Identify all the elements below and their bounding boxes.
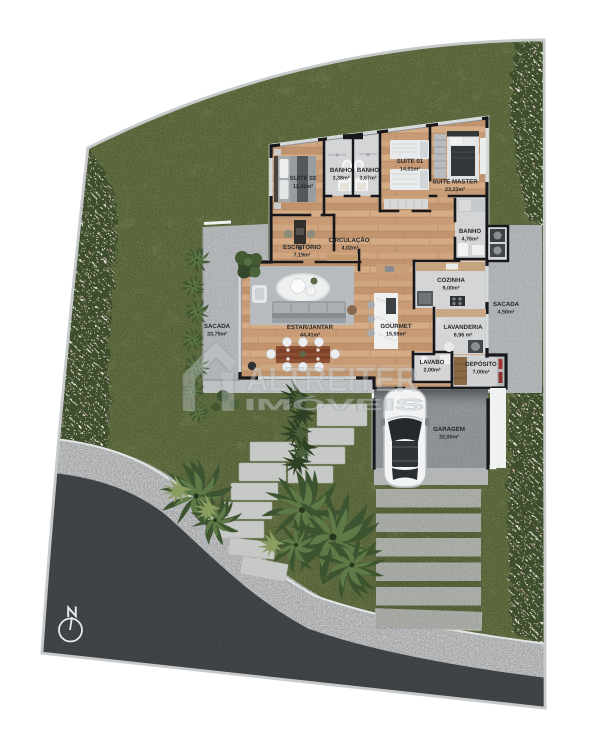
svg-text:LAVABO: LAVABO — [420, 359, 445, 366]
svg-text:23,23m²: 23,23m² — [445, 187, 465, 193]
svg-text:CIRCULAÇÃO: CIRCULAÇÃO — [329, 236, 370, 244]
svg-text:2,00m²: 2,00m² — [423, 368, 440, 374]
svg-text:IMÓVEIS: IMÓVEIS — [244, 395, 425, 414]
svg-text:3,67m²: 3,67m² — [359, 176, 376, 182]
svg-text:GARAGEM: GARAGEM — [433, 426, 465, 433]
svg-text:SUITE 01: SUITE 01 — [397, 158, 424, 165]
svg-text:BANHO: BANHO — [330, 167, 353, 174]
svg-text:7,19m²: 7,19m² — [293, 253, 310, 259]
svg-text:BANHO: BANHO — [459, 228, 482, 235]
svg-text:GOURMET: GOURMET — [380, 323, 411, 330]
svg-text:ESCRITÓRIO: ESCRITÓRIO — [283, 243, 321, 251]
svg-text:14,01m²: 14,01m² — [400, 167, 420, 173]
svg-text:SACADA: SACADA — [204, 323, 231, 330]
svg-text:6,96 m²: 6,96 m² — [454, 333, 473, 339]
svg-text:4,76m²: 4,76m² — [461, 237, 478, 243]
svg-text:BANHO: BANHO — [357, 167, 380, 174]
svg-text:COZINHA: COZINHA — [437, 277, 465, 284]
svg-text:SACADA: SACADA — [493, 301, 520, 308]
svg-text:ALTREITER: ALTREITER — [246, 361, 418, 399]
svg-text:32,00m²: 32,00m² — [439, 435, 459, 441]
svg-text:4,02m²: 4,02m² — [341, 246, 358, 252]
svg-text:44,41m²: 44,41m² — [300, 333, 320, 339]
svg-text:9,00m²: 9,00m² — [442, 286, 459, 292]
svg-text:ESTAR/JANTAR: ESTAR/JANTAR — [287, 324, 334, 331]
svg-text:12,42m²: 12,42m² — [293, 184, 313, 190]
svg-text:15,59m²: 15,59m² — [386, 332, 406, 338]
svg-text:SUITE MASTER: SUITE MASTER — [432, 179, 478, 186]
svg-text:33,75m²: 33,75m² — [207, 332, 227, 338]
svg-text:3,38m²: 3,38m² — [332, 176, 349, 182]
svg-text:DEPÓSITO: DEPÓSITO — [465, 360, 497, 368]
svg-text:7,00m²: 7,00m² — [472, 370, 489, 376]
svg-text:SUITE 02: SUITE 02 — [290, 175, 317, 182]
svg-text:LAVANDERIA: LAVANDERIA — [443, 324, 483, 331]
svg-text:4,50m²: 4,50m² — [497, 310, 514, 316]
